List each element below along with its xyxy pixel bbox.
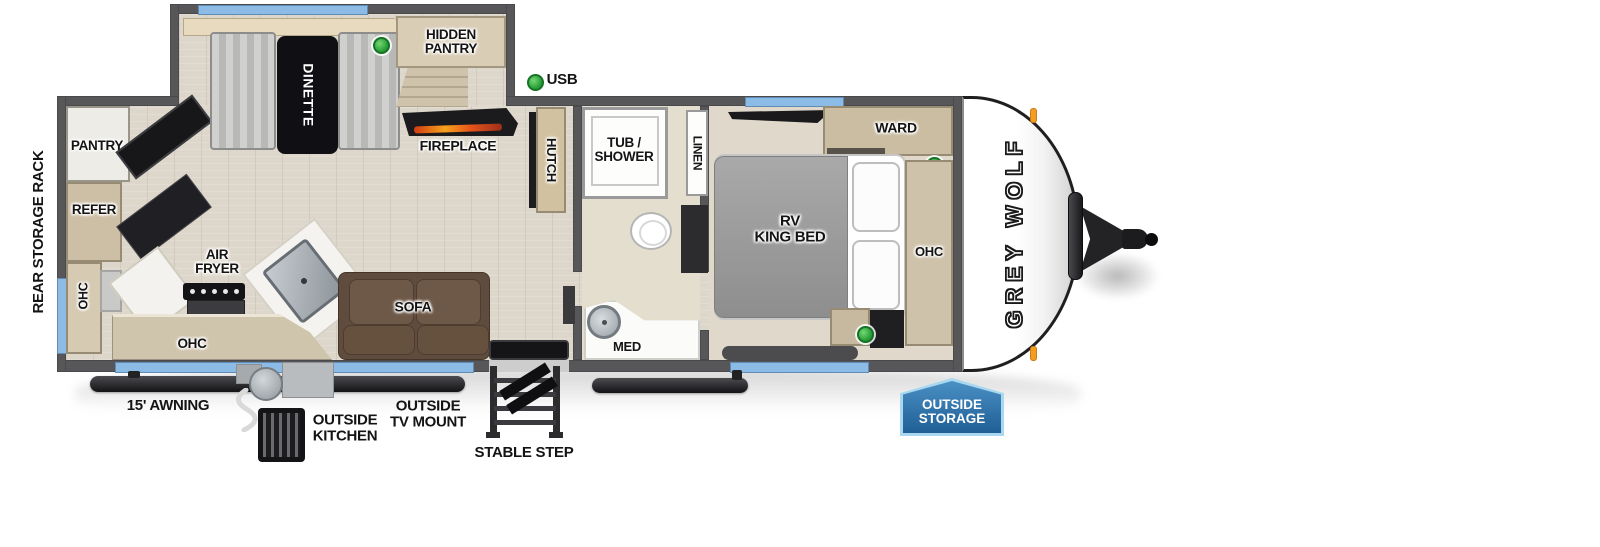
slideout-right-wall	[506, 4, 515, 107]
hutch-label: HUTCH	[544, 138, 558, 182]
bath-dresser	[681, 205, 708, 273]
awning-bracket	[128, 371, 140, 378]
ohc-front-label: OHC	[915, 245, 943, 259]
usb-dot-bedside	[857, 326, 874, 343]
pantry-steps	[396, 68, 468, 107]
refer-label: REFER	[72, 203, 116, 217]
front-wall	[953, 96, 962, 372]
air-fryer-label: AIR FRYER	[195, 248, 239, 276]
toilet	[630, 212, 672, 250]
step-foot-right	[549, 432, 563, 438]
marker-light-bottom	[1030, 346, 1037, 361]
hidden-pantry-label: HIDDEN PANTRY	[425, 28, 477, 56]
bed-label: RV KING BED	[755, 213, 826, 245]
step-rung-3	[494, 406, 556, 411]
bath-wall-left-upper	[573, 106, 582, 272]
slideout-left-wall	[170, 4, 179, 107]
outside-tv-mount-label: OUTSIDE TV MOUNT	[390, 398, 466, 430]
hitch-ball-knob	[1145, 233, 1158, 246]
sofa-window	[330, 362, 474, 373]
bed-pillow-bottom	[852, 240, 900, 310]
step-foot-left	[486, 432, 500, 438]
top-wall-right	[506, 96, 962, 106]
rear-storage-rack-label: REAR STORAGE RACK	[31, 151, 47, 314]
outside-storage-label: OUTSIDE STORAGE	[919, 398, 986, 426]
grill	[258, 408, 305, 462]
stove-burners	[183, 283, 245, 300]
entry-door-post	[563, 286, 575, 324]
awning-label: 15' AWNING	[127, 398, 210, 414]
dinette-window	[198, 5, 368, 15]
med-label: MED	[613, 340, 641, 354]
usb-legend-label: USB	[547, 72, 578, 88]
ohc-left-label: OHC	[77, 283, 90, 310]
dinette-bench-right	[338, 32, 400, 150]
stable-step-label: STABLE STEP	[475, 445, 574, 461]
bath-wall-right-lower	[700, 330, 709, 360]
step-rail-left	[490, 366, 497, 436]
usb-legend-dot	[527, 74, 544, 91]
outside-kitchen-panel	[282, 362, 334, 398]
refer-box	[66, 182, 122, 262]
sofa	[338, 272, 490, 360]
ward-label: WARD	[875, 121, 917, 136]
bed-foot-runner	[722, 346, 858, 360]
step-rung-4	[494, 420, 556, 425]
front-underbody-tube	[592, 378, 748, 393]
hitch-jack	[1068, 192, 1083, 280]
dinette-bench-left	[210, 32, 276, 150]
usb-dot-dinette	[373, 37, 390, 54]
hutch-back-panel	[529, 112, 536, 208]
dinette-label: DINETTE	[301, 63, 316, 126]
outside-kitchen-label: OUTSIDE KITCHEN	[313, 412, 378, 444]
brand-logo: GREY WOLF	[1002, 136, 1026, 329]
marker-light-top	[1030, 108, 1037, 123]
fireplace-label: FIREPLACE	[420, 139, 497, 154]
top-wall-left	[57, 96, 179, 106]
entry-mat	[489, 340, 569, 360]
step-rail-right	[553, 366, 560, 436]
floorplan-diagram: PANTRY REFER OHC AIR FRYER OHC DINETTE H…	[0, 0, 1600, 547]
underbody-bracket	[732, 370, 742, 380]
power-cord	[224, 388, 258, 432]
tub-shower-label: TUB / SHOWER	[595, 136, 654, 164]
nightstand-black	[870, 310, 904, 348]
linen-label: LINEN	[691, 136, 704, 171]
bedroom-window-bottom	[730, 362, 869, 373]
vanity-sink	[587, 305, 621, 339]
ohc-lower-label: OHC	[177, 337, 206, 351]
bed-pillow-top	[852, 162, 900, 232]
sofa-label: SOFA	[395, 300, 432, 315]
